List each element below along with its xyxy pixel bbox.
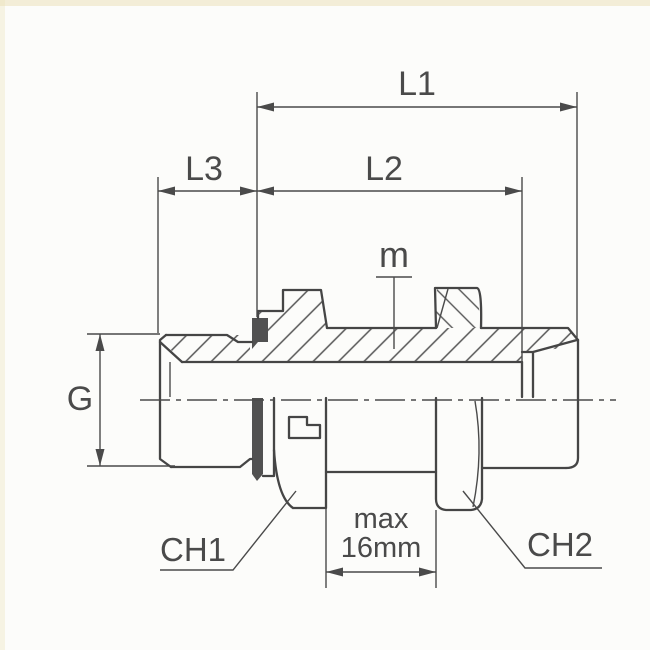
dim-label-m: m xyxy=(379,234,409,275)
dim-label-g: G xyxy=(67,380,93,418)
section-hatch-body xyxy=(163,290,576,362)
fitting-body-outline xyxy=(160,288,578,510)
technical-drawing-page: L1 L3 L2 G m xyxy=(0,0,650,650)
seal-section xyxy=(252,318,268,342)
dim-label-l3: L3 xyxy=(185,150,223,188)
label-ch2-leader: CH2 xyxy=(463,491,602,568)
seal-side-view xyxy=(252,398,263,481)
dim-label-l2: L2 xyxy=(365,150,403,188)
dim-label-ch2: CH2 xyxy=(527,526,593,563)
dimension-max-width: max 16mm xyxy=(326,503,436,588)
dim-label-max-value: 16mm xyxy=(341,532,422,564)
dim-label-l1: L1 xyxy=(398,65,436,103)
fitting-section-drawing: L1 L3 L2 G m xyxy=(0,0,650,650)
label-ch1-leader: CH1 xyxy=(160,491,296,570)
hex-face-mark xyxy=(289,417,320,438)
dim-label-max: max xyxy=(354,503,409,535)
dimension-l3: L3 xyxy=(158,150,257,333)
dim-label-ch1: CH1 xyxy=(160,531,226,568)
